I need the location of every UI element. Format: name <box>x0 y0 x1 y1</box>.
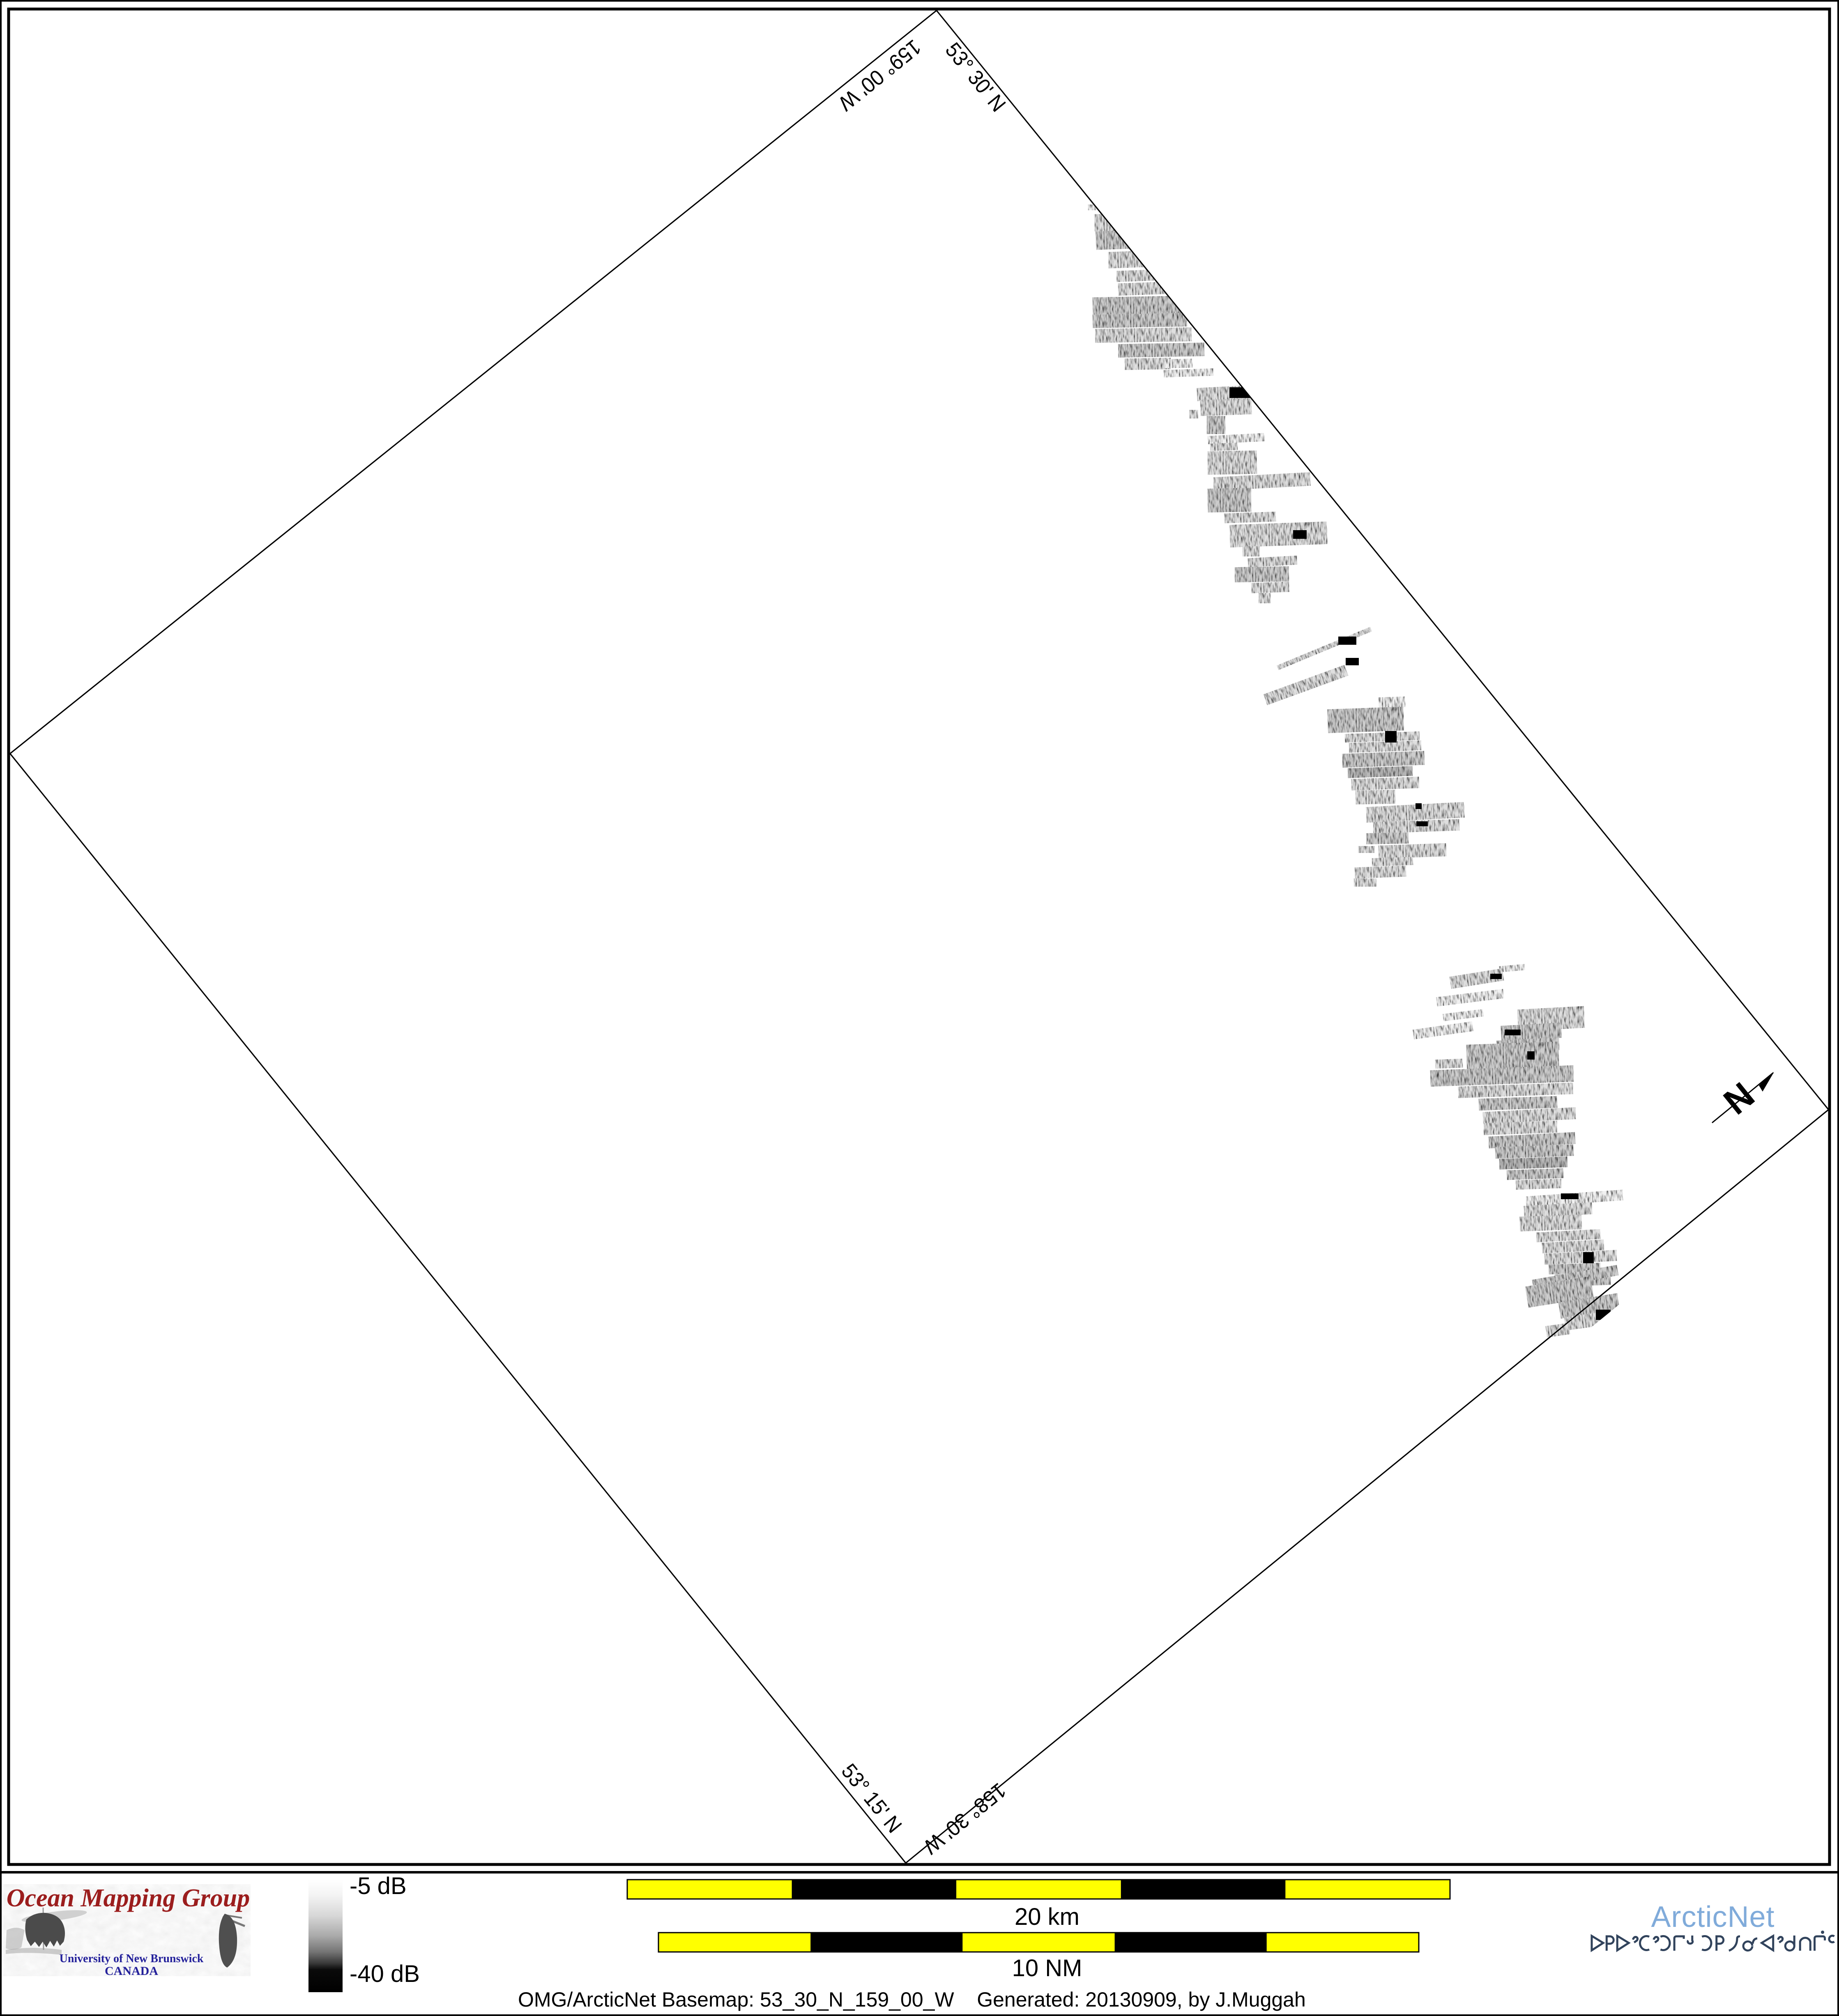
svg-text:CANADA: CANADA <box>105 1964 158 1978</box>
svg-text:-40 dB: -40 dB <box>350 1961 420 1987</box>
svg-text:-5 dB: -5 dB <box>350 1873 407 1899</box>
svg-text:20 km: 20 km <box>1015 1903 1079 1930</box>
svg-text:ArcticNet: ArcticNet <box>1651 1901 1775 1933</box>
svg-text:10 NM: 10 NM <box>1012 1955 1082 1982</box>
svg-text:University of New Brunswick: University of New Brunswick <box>60 1952 204 1965</box>
svg-text:Ocean Mapping Group: Ocean Mapping Group <box>7 1884 250 1912</box>
svg-text:OMG/ArcticNet Basemap: 53_30_N: OMG/ArcticNet Basemap: 53_30_N_159_00_W … <box>518 1988 1306 2011</box>
